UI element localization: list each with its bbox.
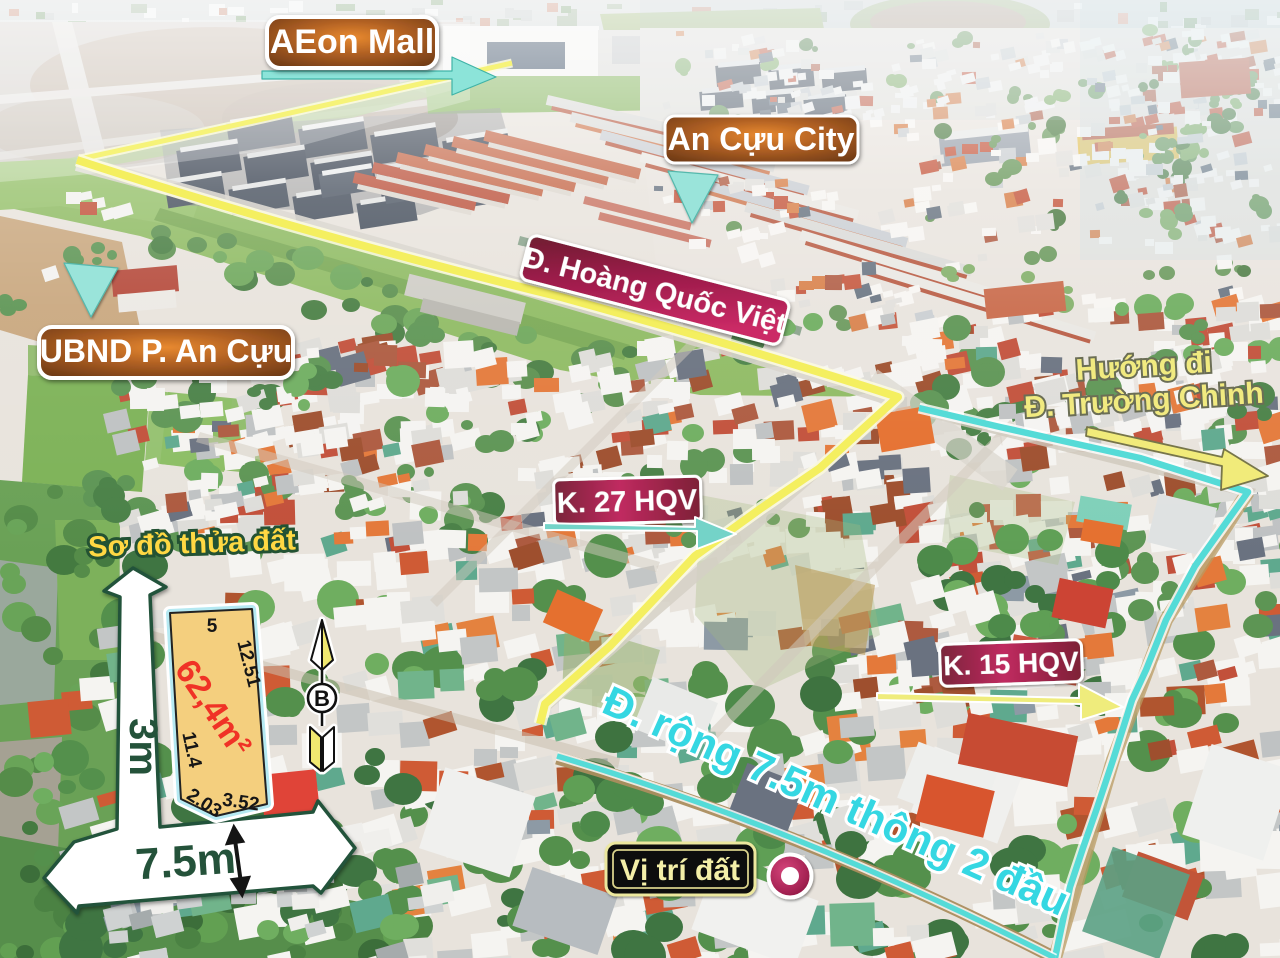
svg-text:Vị trí đất: Vị trí đất: [620, 854, 740, 887]
svg-text:K. 15 HQV: K. 15 HQV: [943, 646, 1080, 682]
svg-text:5: 5: [207, 616, 218, 637]
svg-text:7.5m: 7.5m: [134, 834, 237, 890]
svg-text:3m: 3m: [121, 718, 165, 776]
svg-text:An Cựu City: An Cựu City: [668, 121, 855, 157]
svg-text:K. 27 HQV: K. 27 HQV: [557, 484, 699, 520]
svg-text:B: B: [314, 686, 330, 711]
svg-text:UBND P. An Cựu: UBND P. An Cựu: [40, 333, 293, 369]
svg-text:AEon Mall: AEon Mall: [270, 23, 434, 61]
